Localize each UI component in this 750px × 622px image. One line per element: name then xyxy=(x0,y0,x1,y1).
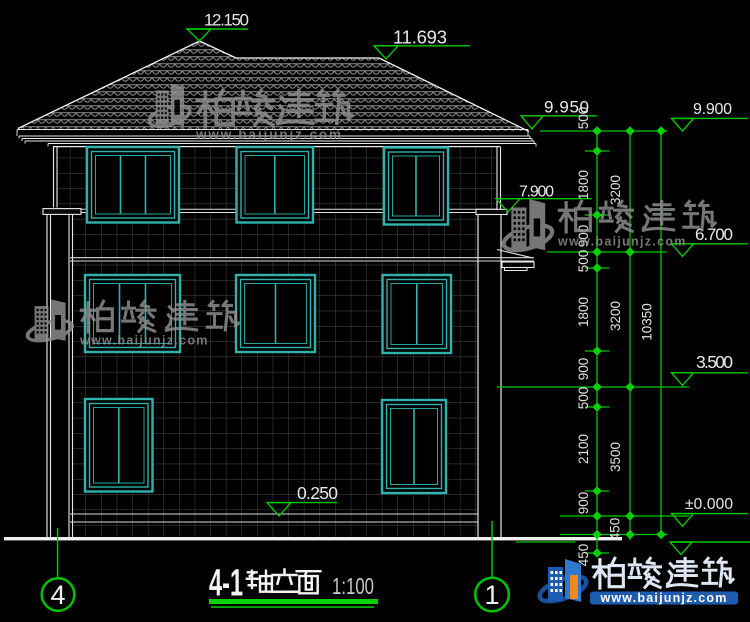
svg-text:1:100: 1:100 xyxy=(332,575,374,600)
svg-text:900: 900 xyxy=(576,492,591,515)
svg-text:2100: 2100 xyxy=(576,434,591,464)
svg-text:0.250: 0.250 xyxy=(297,483,338,503)
svg-text:7.900: 7.900 xyxy=(519,184,554,201)
svg-text:www.baijunjz.com: www.baijunjz.com xyxy=(599,591,727,605)
svg-text:450: 450 xyxy=(576,544,591,567)
svg-text:www.baijunjz.com: www.baijunjz.com xyxy=(557,235,687,249)
svg-text:1: 1 xyxy=(484,580,499,610)
svg-text:500: 500 xyxy=(576,250,591,273)
svg-text:500: 500 xyxy=(576,387,591,410)
svg-text:3200: 3200 xyxy=(608,301,623,331)
svg-text:11.693: 11.693 xyxy=(393,27,447,48)
svg-text:500: 500 xyxy=(576,107,591,130)
svg-text:4: 4 xyxy=(50,580,65,610)
svg-text:10350: 10350 xyxy=(640,303,655,341)
svg-text:www.baijunjz.com: www.baijunjz.com xyxy=(79,334,209,348)
svg-text:4-1: 4-1 xyxy=(209,561,243,604)
svg-text:1800: 1800 xyxy=(576,170,591,200)
svg-text:900: 900 xyxy=(576,358,591,381)
svg-text:www.baijunjz.com: www.baijunjz.com xyxy=(195,127,343,142)
svg-text:12.150: 12.150 xyxy=(204,11,249,30)
svg-text:3.500: 3.500 xyxy=(696,352,733,372)
svg-text:9.900: 9.900 xyxy=(693,101,732,118)
svg-text:450: 450 xyxy=(608,518,623,541)
svg-text:3500: 3500 xyxy=(608,442,623,472)
svg-text:1800: 1800 xyxy=(576,297,591,327)
svg-text:±0.000: ±0.000 xyxy=(685,496,733,513)
